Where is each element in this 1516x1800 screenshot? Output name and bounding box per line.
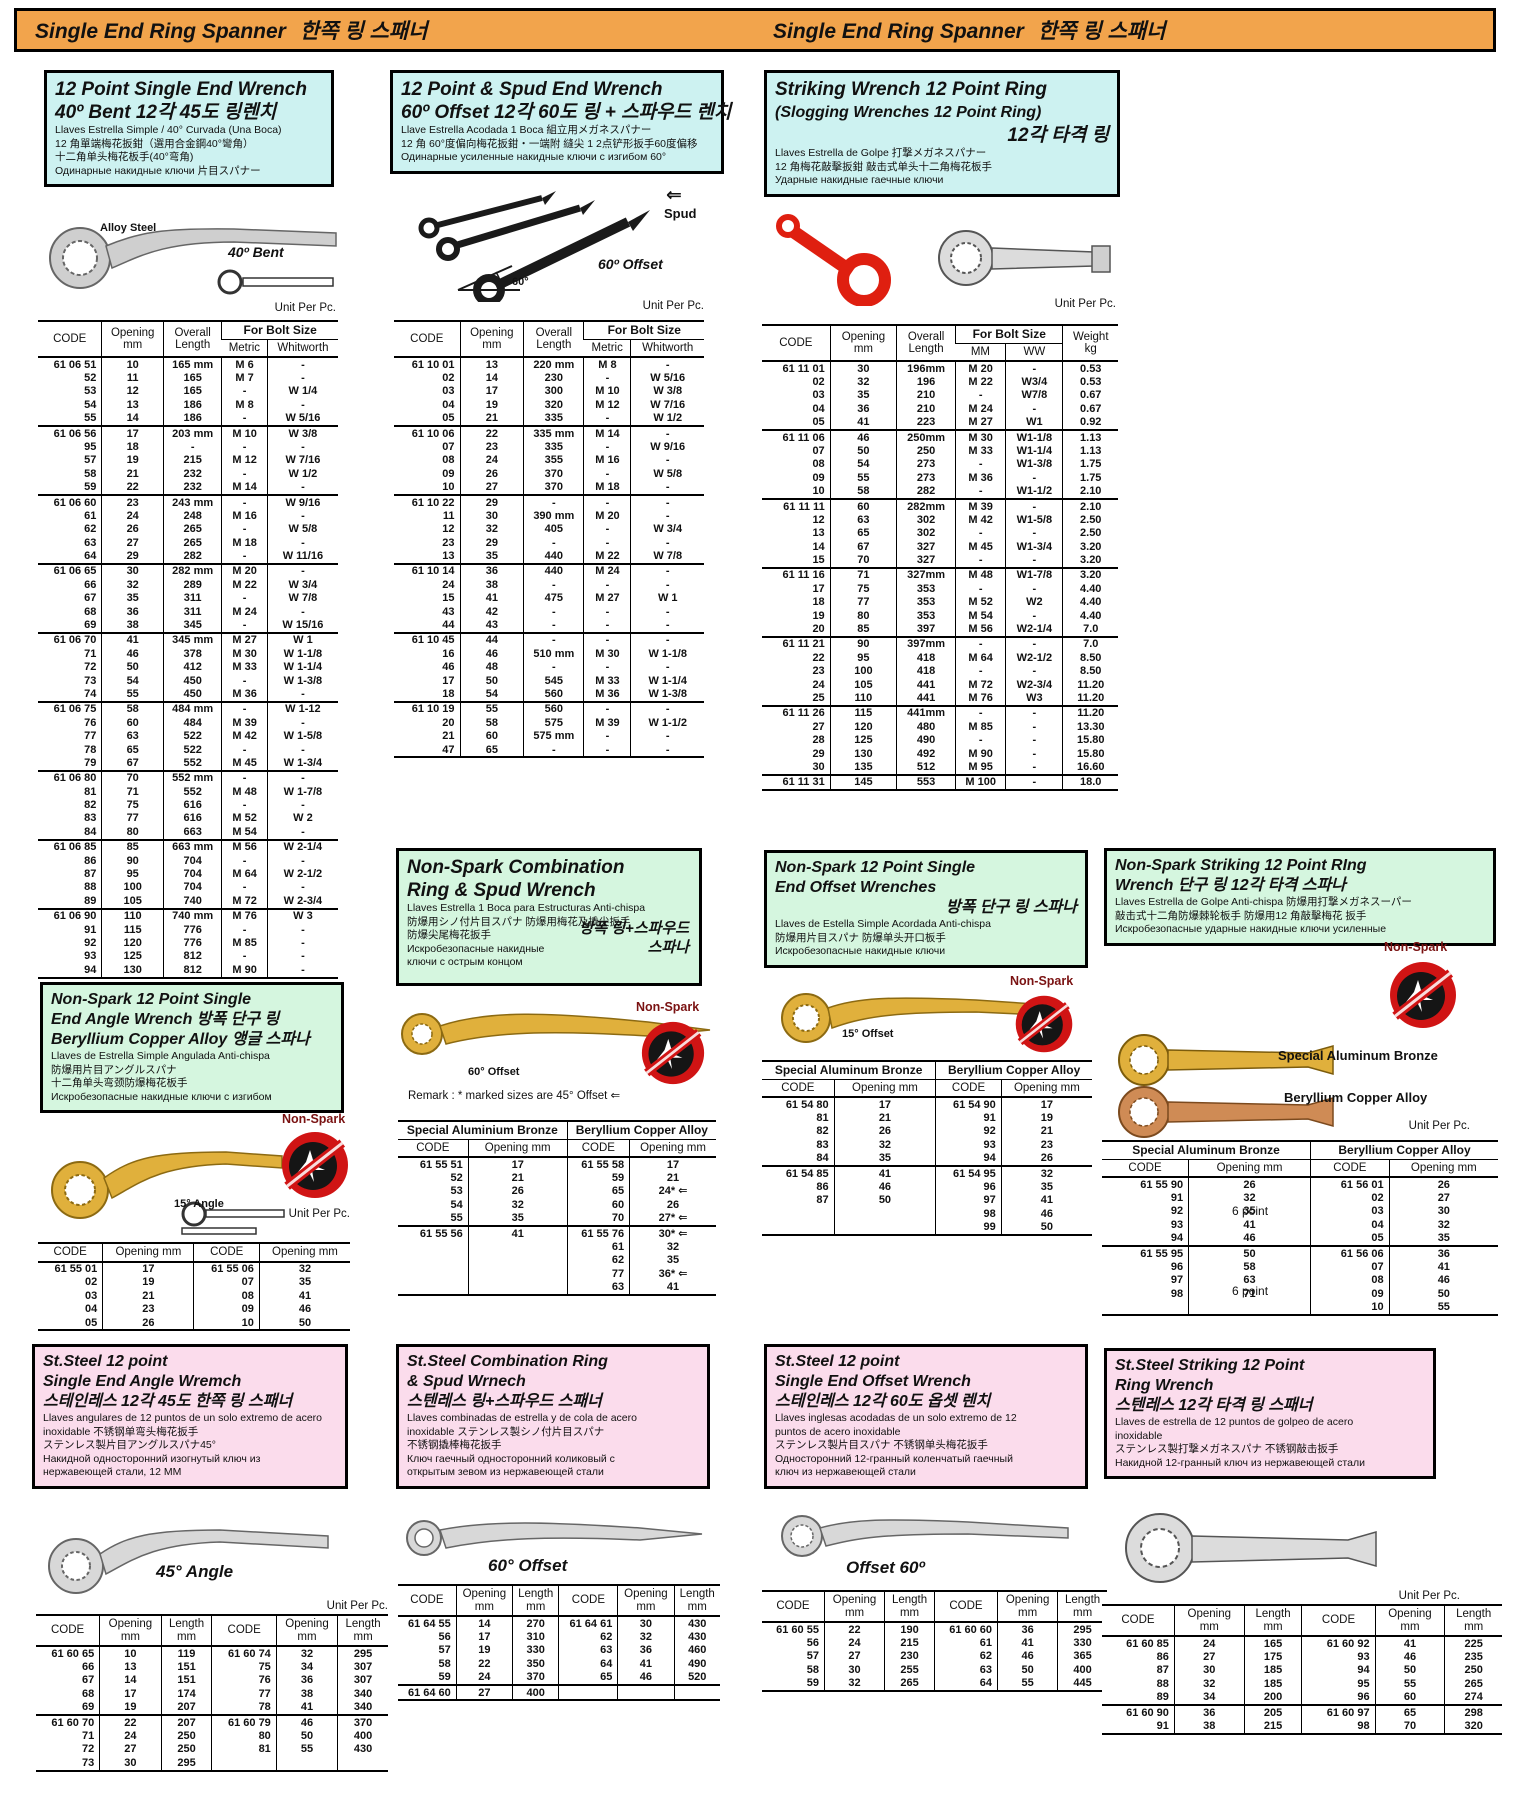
table-cell: 776 xyxy=(163,936,221,949)
table-row: 6938345-W 15/16 xyxy=(38,618,338,632)
table-cell: W 11/16 xyxy=(267,549,338,563)
table-cell: 85 xyxy=(830,622,896,636)
table-row: 94130812M 90- xyxy=(38,963,338,977)
table-cell: 1.13 xyxy=(1063,430,1118,444)
table-cell: 282 mm xyxy=(163,564,221,578)
text-line: Llaves de estrella de 12 puntos de golpe… xyxy=(1115,1416,1425,1430)
table-cell: 20 xyxy=(394,716,460,729)
table-cell: 17 xyxy=(103,1262,194,1276)
table-cell: 61 10 06 xyxy=(394,426,460,440)
table-cell: 72 xyxy=(36,1743,100,1756)
table-cell: 61 64 61 xyxy=(559,1616,618,1630)
table-row: 1467327M 45W1-3/43.20 xyxy=(762,540,1118,553)
table-cell: 36 xyxy=(998,1622,1058,1636)
section-subtitles: Llaves combinadas de estrella y de cola … xyxy=(407,1412,699,1480)
table-cell: W 1-7/8 xyxy=(267,785,338,798)
table-cell: 71 xyxy=(38,647,102,660)
table-cell: 24 xyxy=(456,1671,512,1685)
table-cell: W 1-12 xyxy=(267,702,338,716)
table-cell: - xyxy=(267,743,338,756)
table-cell: 125 xyxy=(102,950,164,963)
table-cell: 441mm xyxy=(897,706,956,720)
table-ststeel-offset: CODEOpeningmmLengthmmCODEOpeningmmLength… xyxy=(762,1590,1107,1692)
table-cell xyxy=(1102,1301,1189,1315)
table-cell: 24 xyxy=(460,454,524,467)
table-cell: 353 xyxy=(897,582,956,595)
table-cell: 174 xyxy=(161,1687,212,1700)
table-row: 71242508050400 xyxy=(36,1729,388,1742)
table-cell: 46 xyxy=(1389,1274,1498,1287)
text-line: Single End Offset Wrench xyxy=(775,1372,1077,1392)
table-cell: 2.10 xyxy=(1063,485,1118,499)
table-cell: 19 xyxy=(102,454,164,467)
section-subtitles: Llaves Estrella Simple / 40° Curvada (Un… xyxy=(55,124,323,178)
caption-non-spark: Non-Spark xyxy=(1384,940,1447,954)
table-cell: M 76 xyxy=(956,691,1006,705)
table-cell: 311 xyxy=(163,592,221,605)
column-header: Openingmm xyxy=(456,1585,512,1616)
table-cell: M 14 xyxy=(584,426,631,440)
table-row: 61 55 902661 56 0126 xyxy=(1102,1177,1498,1191)
column-header: Openingmm xyxy=(998,1591,1058,1622)
table-cell: 03 xyxy=(394,385,460,398)
table-cell: 61 60 60 xyxy=(934,1622,997,1636)
table-cell: - xyxy=(631,578,704,591)
table-cell: 200 xyxy=(1244,1691,1302,1705)
table-row: 7354450-W 1-3/8 xyxy=(38,674,338,687)
text-line: 防爆用片目アングルスパナ xyxy=(51,1064,333,1078)
left-arrow-icon: ⇐ xyxy=(666,184,682,207)
table-cell: 83 xyxy=(38,812,102,825)
table-cell: 91 xyxy=(1102,1191,1189,1204)
table-cell: 53 xyxy=(38,385,102,398)
table-row: 61 54 801761 54 9017 xyxy=(762,1097,1092,1111)
table-row: 67141517636307 xyxy=(36,1674,388,1687)
table-row: 84359426 xyxy=(762,1152,1092,1166)
table-cell: 95 xyxy=(1302,1677,1375,1690)
column-header: CODE xyxy=(1102,1605,1174,1636)
table-cell: 52 xyxy=(38,371,102,384)
table-cell: 58 xyxy=(762,1663,824,1676)
column-subheader: WW xyxy=(1006,343,1063,361)
table-cell: M 85 xyxy=(956,720,1006,733)
table-cell: 2.50 xyxy=(1063,513,1118,526)
table-cell: 34 xyxy=(1174,1691,1244,1705)
table-cell: 0.67 xyxy=(1063,402,1118,415)
section-ststeel-combination: St.Steel Combination Ring& Spud Wrnech스텐… xyxy=(396,1344,710,1489)
table-cell: 185 xyxy=(1244,1664,1302,1677)
text-line: Non-Spark Combination xyxy=(407,856,691,879)
table-cell: 82 xyxy=(762,1125,834,1138)
table-cell: 61 06 90 xyxy=(38,909,102,923)
table-cell: M 6 xyxy=(222,357,267,371)
table-cell: 76 xyxy=(38,716,102,729)
table-cell: 54 xyxy=(460,687,524,701)
table-cell: 255 xyxy=(885,1663,935,1676)
table-cell: 26 xyxy=(103,1316,194,1330)
table-cell: W1-5/8 xyxy=(1006,513,1063,526)
banner-right: Single End Ring Spanner한쪽 링 스패너 xyxy=(755,15,1493,45)
table-cell: W 3/4 xyxy=(267,578,338,591)
table-cell: 14 xyxy=(460,371,524,384)
table-cell: - xyxy=(524,578,584,591)
column-header: CODE xyxy=(394,321,460,357)
table-cell: 50 xyxy=(998,1663,1058,1676)
column-header: Beryllium Copper Alloy xyxy=(1311,1141,1499,1159)
table-cell: 19 xyxy=(1001,1111,1092,1124)
table-cell: 36 xyxy=(618,1644,674,1657)
table-cell: 616 xyxy=(163,799,221,812)
table-cell: 484 mm xyxy=(163,702,221,716)
table-cell: 370 xyxy=(512,1671,559,1685)
table-cell: 190 xyxy=(885,1622,935,1636)
catalog-table: CODEOpeningmmOverallLengthFor Bolt SizeM… xyxy=(38,320,338,979)
table-cell: 203 mm xyxy=(163,426,221,440)
table-row: 7967552M 45W 1-3/4 xyxy=(38,756,338,770)
table-row: 7250412M 33W 1-1/4 xyxy=(38,661,338,674)
table-cell: W 3/4 xyxy=(631,523,704,536)
text-line: St.Steel 12 point xyxy=(43,1352,337,1372)
table-cell: 62 xyxy=(38,523,102,536)
table-cell: 740 xyxy=(163,894,221,908)
table-cell: 378 xyxy=(163,647,221,660)
table-row: 58302556350400 xyxy=(762,1663,1107,1676)
column-header: Lengthmm xyxy=(512,1585,559,1616)
table-row: 61 60 852416561 60 9241225 xyxy=(1102,1636,1502,1650)
table-row: 6226265-W 5/8 xyxy=(38,523,338,536)
table-cell: - xyxy=(956,485,1006,499)
table-cell: 81 xyxy=(762,1111,834,1124)
wrench-illustration-steel-striking xyxy=(1108,1500,1418,1592)
banner-title-en: Single End Ring Spanner xyxy=(773,20,1024,43)
table-cell: 186 xyxy=(163,398,221,411)
table-cell: 19 xyxy=(762,609,830,622)
table-cell: W 1-3/8 xyxy=(631,687,704,701)
table-cell: 320 xyxy=(1445,1719,1502,1733)
column-header: Lengthmm xyxy=(338,1615,388,1646)
table-cell: W 3 xyxy=(267,909,338,923)
table-cell: - xyxy=(267,881,338,894)
table-cell: 11 xyxy=(102,371,164,384)
table-cell: 07 xyxy=(394,440,460,453)
table-cell: 480 xyxy=(897,720,956,733)
text-line: 敲击式十二角防爆棘轮板手 防爆用12 角敲擊梅花 扳手 xyxy=(1115,910,1485,924)
table-cell xyxy=(276,1756,337,1770)
table-cell: 58 xyxy=(1189,1260,1311,1273)
table-row: 2438--- xyxy=(394,578,704,591)
table-cell: - xyxy=(1006,760,1063,774)
table-cell: 560 xyxy=(524,702,584,716)
table-cell: 0.53 xyxy=(1063,361,1118,375)
table-cell: 274 xyxy=(1445,1691,1502,1705)
table-row: 92120776M 85- xyxy=(38,936,338,949)
table-row: 66131517534307 xyxy=(36,1660,388,1673)
section-ststeel-offset: St.Steel 12 pointSingle End Offset Wrenc… xyxy=(764,1344,1088,1489)
table-cell: 78 xyxy=(212,1701,276,1715)
column-header: OverallLength xyxy=(524,321,584,357)
table-row: 1980353M 54-4.40 xyxy=(762,609,1118,622)
table-cell: 44 xyxy=(394,618,460,632)
table-cell: W1-7/8 xyxy=(1006,568,1063,582)
table-cell: 30* ⇐ xyxy=(630,1226,716,1240)
table-cell xyxy=(618,1685,674,1700)
table-cell: 17 xyxy=(456,1630,512,1643)
table-cell: 250mm xyxy=(897,430,956,444)
table-cell: 80 xyxy=(212,1729,276,1742)
table-cell: 330 xyxy=(1058,1636,1107,1649)
table-row: 2329--- xyxy=(394,536,704,549)
table-cell: 70 xyxy=(1375,1719,1445,1733)
table-cell: 282 xyxy=(897,485,956,499)
table-cell: 575 mm xyxy=(524,730,584,743)
table-cell: - xyxy=(267,605,338,618)
catalog-table: CODEOpeningmmLengthmmCODEOpeningmmLength… xyxy=(762,1590,1107,1692)
table-cell: 17 xyxy=(102,426,164,440)
table-cell: 320 xyxy=(524,398,584,411)
non-spark-icon xyxy=(280,1130,350,1200)
table-row: 88100704-- xyxy=(38,881,338,894)
table-row: 6124248M 16- xyxy=(38,509,338,522)
table-cell: 273 xyxy=(897,471,956,484)
table-cell: 412 xyxy=(163,661,221,674)
banner-title-kr: 한쪽 링 스패너 xyxy=(1038,20,1166,43)
table-cell: 355 xyxy=(524,454,584,467)
table-cell: 663 xyxy=(163,825,221,839)
table-cell: 69 xyxy=(36,1701,100,1715)
table-cell: 57 xyxy=(762,1650,824,1663)
table-cell: M 30 xyxy=(222,647,267,660)
table-cell: 16 xyxy=(394,647,460,660)
table-row: 0521335-W 1/2 xyxy=(394,412,704,426)
column-subheader: CODE xyxy=(567,1139,629,1157)
banner-title-en: Single End Ring Spanner xyxy=(35,20,286,43)
column-subheader: Opening mm xyxy=(1189,1159,1311,1177)
table-cell: 32 xyxy=(1389,1218,1498,1231)
table-cell: W 2-3/4 xyxy=(267,894,338,908)
table-cell: W 5/8 xyxy=(631,467,704,480)
table-cell: - xyxy=(631,605,704,618)
catalog-table: Special Aluminum BronzeBeryllium Copper … xyxy=(1102,1140,1498,1316)
table-cell: M 27 xyxy=(584,592,631,605)
table-row: 1263302M 42W1-5/82.50 xyxy=(762,513,1118,526)
table-cell: 46 xyxy=(618,1671,674,1685)
table-cell: W2-1/4 xyxy=(1006,622,1063,636)
caption-non-spark: Non-Spark xyxy=(636,1000,699,1014)
table-cell: 15 xyxy=(762,553,830,567)
table-cell: - xyxy=(1006,706,1063,720)
table-cell: 3.20 xyxy=(1063,540,1118,553)
table-row: 6836311M 24- xyxy=(38,605,338,618)
table-cell: 24 xyxy=(1174,1636,1244,1650)
table-row: 57272306246365 xyxy=(762,1650,1107,1663)
table-row: 1570327--3.20 xyxy=(762,553,1118,567)
table-row: 61 11 2190397mm--7.0 xyxy=(762,637,1118,651)
unit-per-pc: Unit Per Pc. xyxy=(240,1600,388,1612)
table-row: 1541475M 27W 1 xyxy=(394,592,704,605)
table-cell: 0.92 xyxy=(1063,416,1118,430)
column-header: Openingmm xyxy=(102,321,164,357)
column-header: CODE xyxy=(194,1243,259,1262)
table-nonspark-combination: Special Aluminium BronzeBeryllium Copper… xyxy=(398,1120,716,1296)
column-header: CODE xyxy=(934,1591,997,1622)
table-cell: W 9/16 xyxy=(631,440,704,453)
section-subtitles: Llaves angulares de 12 puntos de un solo… xyxy=(43,1412,337,1480)
section-subtitles: Llaves Estrella de Golpe 打撃メガネスパナー12 角梅花… xyxy=(775,147,1109,188)
table-cell: 185 xyxy=(1244,1677,1302,1690)
non-spark-icon xyxy=(1388,960,1458,1030)
table-cell: 35 xyxy=(468,1212,567,1226)
table-cell: 11.20 xyxy=(1063,706,1118,720)
table-cell: 46 xyxy=(834,1180,936,1193)
banner-left: Single End Ring Spanner한쪽 링 스패너 xyxy=(17,15,755,45)
table-cell: 90 xyxy=(830,637,896,651)
table-cell: 19 xyxy=(456,1644,512,1657)
table-cell: 08 xyxy=(194,1289,259,1302)
column-subheader: Opening mm xyxy=(834,1079,936,1097)
table-cell: - xyxy=(631,357,704,371)
table-cell: M 85 xyxy=(222,936,267,949)
table-cell: 03 xyxy=(38,1289,103,1302)
table-cell: 46 xyxy=(1001,1207,1092,1220)
table-cell: 17 xyxy=(394,674,460,687)
table-cell: 35 xyxy=(259,1276,350,1289)
table-row: 61 06 7558484 mm-W 1-12 xyxy=(38,702,338,716)
table-cell: 36 xyxy=(830,402,896,415)
table-cell: 298 xyxy=(1445,1705,1502,1719)
table-cell: 545 xyxy=(524,674,584,687)
table-cell: 94 xyxy=(936,1152,1002,1166)
table-cell: 235 xyxy=(1445,1650,1502,1663)
text-line: Llaves angulares de 12 puntos de un solo… xyxy=(43,1412,337,1426)
table-cell: W 1-1/8 xyxy=(267,647,338,660)
table-cell: 63 xyxy=(559,1644,618,1657)
table-cell: 460 xyxy=(674,1644,720,1657)
table-cell: - xyxy=(956,582,1006,595)
text-line: 12 角 60°度偏向梅花扳鉗・一端附 縫尖 1 2点铲形扳手60度偏移 xyxy=(401,138,713,152)
table-cell: 61 60 79 xyxy=(212,1715,276,1729)
table-cell: - xyxy=(956,734,1006,747)
table-cell: W7/8 xyxy=(1006,389,1063,402)
table-cell: 265 xyxy=(1445,1677,1502,1690)
table-cell: 09 xyxy=(1311,1287,1390,1300)
text-line: Искробезопасные накидные ключи с изгибом xyxy=(51,1091,333,1105)
table-cell: M 24 xyxy=(584,564,631,578)
table-cell: 32 xyxy=(276,1646,337,1660)
table-cell: 370 xyxy=(338,1715,388,1729)
table-cell: 120 xyxy=(102,936,164,949)
column-header: For Bolt Size xyxy=(584,321,704,339)
banner-title-kr: 한쪽 링 스패너 xyxy=(300,20,428,43)
table-cell: 210 xyxy=(897,402,956,415)
table-cell: 50 xyxy=(276,1729,337,1742)
table-cell: 512 xyxy=(897,760,956,774)
table-cell: - xyxy=(222,495,267,509)
section-nonspark-combination: Non-Spark CombinationRing & Spud Wrench … xyxy=(396,848,702,986)
column-header: OverallLength xyxy=(163,321,221,357)
table-cell: 79 xyxy=(38,756,102,770)
table-cell: 19 xyxy=(460,398,524,411)
table-cell: - xyxy=(1006,361,1063,375)
table-cell: 41 xyxy=(259,1289,350,1302)
table-cell: 38 xyxy=(276,1687,337,1700)
table-row: 6735311-W 7/8 xyxy=(38,592,338,605)
table-cell: 1.75 xyxy=(1063,458,1118,471)
table-cell: 19 xyxy=(100,1701,161,1715)
text-line: 十二角单头梅花板手(40°弯角) xyxy=(55,151,323,165)
table-row: 59243706546520 xyxy=(398,1671,720,1685)
column-header: Special Aluminum Bronze xyxy=(762,1061,936,1079)
table-cell: 59 xyxy=(567,1171,629,1184)
table-cell: 11 xyxy=(394,509,460,522)
table-row: 4443--- xyxy=(394,618,704,632)
table-cell: 8.50 xyxy=(1063,665,1118,678)
table-cell: W1-3/8 xyxy=(1006,458,1063,471)
table-cell: M 33 xyxy=(956,444,1006,457)
column-header: CODE xyxy=(762,325,830,361)
table-cell: 552 xyxy=(163,756,221,770)
table-row: 91320227 xyxy=(1102,1191,1498,1204)
table-cell: 70 xyxy=(567,1212,629,1226)
table-cell: 4.40 xyxy=(1063,609,1118,622)
table-cell: 812 xyxy=(163,950,221,963)
table-cell: 24 xyxy=(100,1729,161,1742)
table-cell: - xyxy=(222,467,267,480)
table-row: 6429282-W 11/16 xyxy=(38,549,338,563)
table-cell: 17 xyxy=(460,385,524,398)
table-cell: - xyxy=(584,578,631,591)
table-cell: 61 60 90 xyxy=(1102,1705,1174,1719)
table-cell: 510 mm xyxy=(524,647,584,660)
table-cell: W 1/2 xyxy=(267,467,338,480)
note-6-point: 6 point xyxy=(1232,1204,1268,1218)
table-cell: 11.20 xyxy=(1063,678,1118,691)
table-row: 28125490--15.80 xyxy=(762,734,1118,747)
table-cell: 58 xyxy=(102,702,164,716)
table-cell: 63 xyxy=(934,1663,997,1676)
catalog-table: Special Aluminium BronzeBeryllium Copper… xyxy=(398,1120,716,1296)
table-cell: - xyxy=(1006,499,1063,513)
korean-note: 방폭 링+스파우드스파나 xyxy=(579,919,689,957)
caption-15-angle: 15° Angle xyxy=(174,1198,224,1210)
table-cell: 12 xyxy=(102,385,164,398)
table-cell: 04 xyxy=(1311,1218,1390,1231)
table-cell: M 39 xyxy=(584,716,631,729)
table-row: 1130390 mmM 20- xyxy=(394,509,704,522)
table-row: 81219119 xyxy=(762,1111,1092,1124)
table-cell: - xyxy=(267,440,338,453)
table-cell: 15.80 xyxy=(1063,734,1118,747)
text-line: St.Steel 12 point xyxy=(775,1352,1077,1372)
column-header: CODE xyxy=(559,1585,618,1616)
text-line: Искробезопасные ударные накидные ключи у… xyxy=(1115,923,1485,937)
table-row: 61 11 1160282mmM 39-2.10 xyxy=(762,499,1118,513)
table-cell: - xyxy=(584,523,631,536)
table-cell: 41 xyxy=(830,416,896,430)
table-cell: 24 xyxy=(394,578,460,591)
table-row: 1058282-W1-1/22.10 xyxy=(762,485,1118,499)
table-cell: 397mm xyxy=(897,637,956,651)
table-cell: 776 xyxy=(163,923,221,936)
table-cell: 27 xyxy=(460,481,524,495)
text-line: inoxidable xyxy=(1115,1430,1425,1444)
table-row: 7146378M 30W 1-1/8 xyxy=(38,647,338,660)
table-cell: 50 xyxy=(830,444,896,457)
table-cell xyxy=(674,1685,720,1700)
table-cell: 30 xyxy=(1174,1664,1244,1677)
table-cell: - xyxy=(222,799,267,812)
table-cell: 61 55 06 xyxy=(194,1262,259,1276)
table-row: 61 10 2229--- xyxy=(394,495,704,509)
